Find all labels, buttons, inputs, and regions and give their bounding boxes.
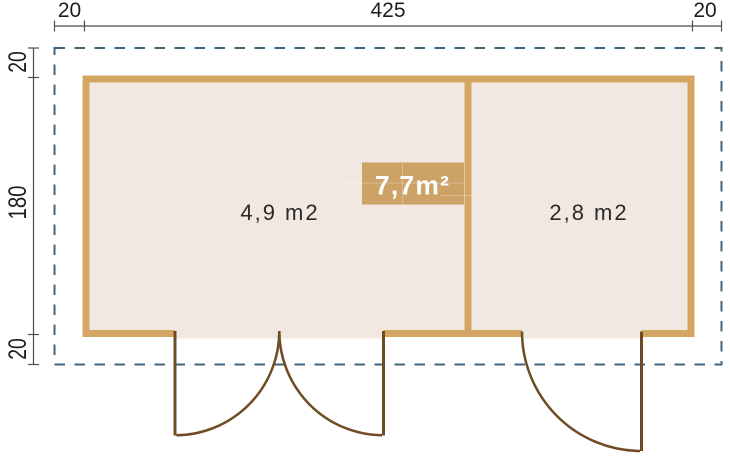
svg-text:425: 425 (370, 0, 405, 22)
svg-text:7,7m²: 7,7m² (375, 171, 450, 201)
svg-text:20: 20 (58, 0, 81, 22)
svg-text:4,9 m2: 4,9 m2 (240, 200, 319, 225)
svg-text:20: 20 (4, 51, 32, 73)
svg-text:180: 180 (4, 186, 32, 220)
svg-text:20: 20 (693, 0, 716, 22)
svg-text:2,8 m2: 2,8 m2 (549, 200, 628, 225)
svg-text:20: 20 (4, 338, 32, 360)
